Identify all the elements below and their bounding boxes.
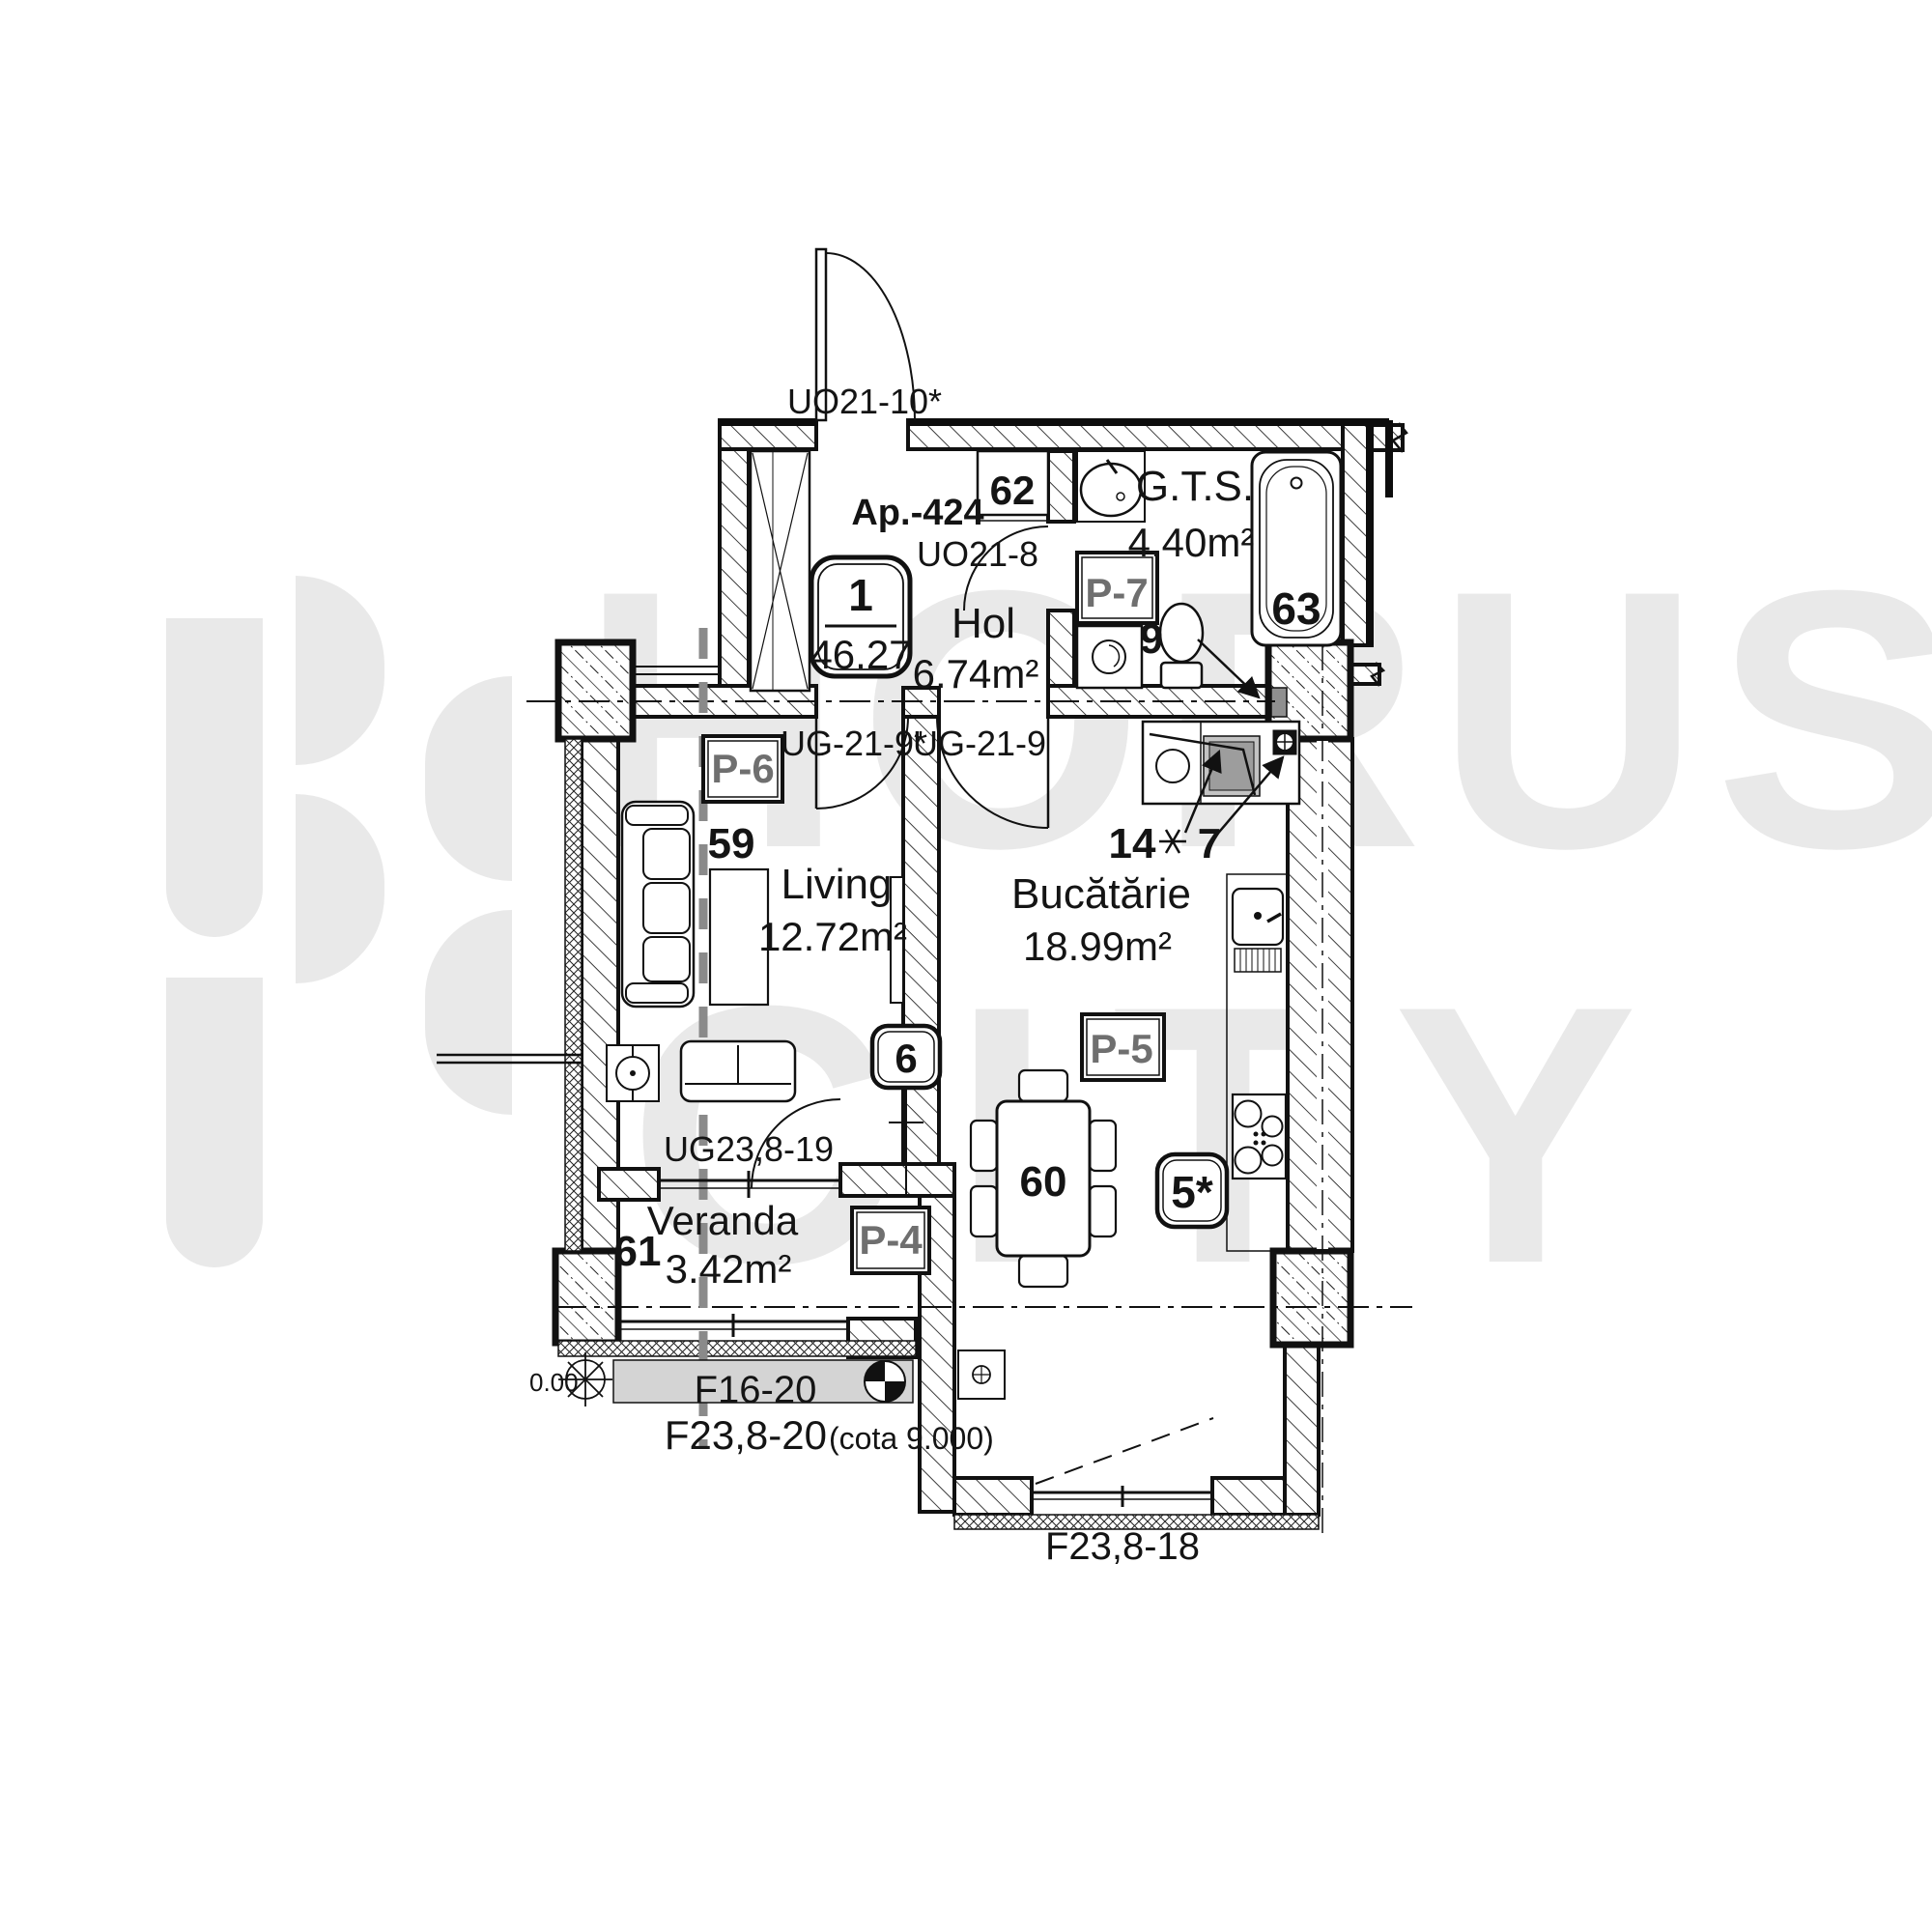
stove	[1233, 1094, 1286, 1179]
badge-apartment-number: 1	[848, 570, 873, 620]
wall-bay-right	[1285, 1345, 1319, 1515]
label-lower-window: F23,8-20	[665, 1412, 827, 1458]
label-p5: P-5	[1090, 1026, 1152, 1071]
label-bathtub-63: 63	[1271, 583, 1321, 634]
wall-bath-left-top	[1048, 451, 1074, 522]
label-wardrobe-62: 62	[990, 468, 1036, 513]
chair	[1019, 1070, 1067, 1101]
loveseat	[681, 1041, 795, 1101]
label-badge-5star: 5*	[1171, 1167, 1213, 1217]
label-veranda-door: UG23,8-19	[664, 1129, 834, 1169]
label-p7: P-7	[1085, 570, 1148, 615]
label-kitchen-area: 18.99m²	[1023, 923, 1172, 969]
chair	[1090, 1121, 1116, 1171]
chair	[971, 1121, 997, 1171]
column-top-left	[558, 642, 633, 739]
label-bath-door: UO21-8	[917, 534, 1038, 574]
label-kitchen-door: UG-21-9	[913, 724, 1046, 763]
label-washer-14: 14	[1109, 820, 1156, 867]
label-gts-name: G.T.S.	[1136, 463, 1254, 510]
floorplan-page: HORUS CITY	[0, 0, 1932, 1932]
label-living-name: Living	[781, 861, 893, 908]
label-p4: P-4	[859, 1217, 923, 1263]
label-level: 0.00	[529, 1368, 579, 1397]
label-living-59: 59	[708, 820, 755, 867]
wall-entry-left	[720, 449, 749, 686]
chair	[1090, 1186, 1116, 1236]
label-dining-60: 60	[1020, 1158, 1067, 1206]
benchmark-icon	[865, 1361, 905, 1402]
insulation-veranda	[558, 1341, 916, 1356]
sofa-cushion	[643, 883, 690, 933]
insulation-left	[565, 739, 582, 1251]
washing-machine	[1077, 626, 1142, 688]
sofa-cushion	[643, 829, 690, 879]
media-unit	[607, 1045, 659, 1101]
label-sill-window: F16-20	[695, 1369, 817, 1411]
label-veranda-area: 3.42m²	[666, 1246, 792, 1292]
column-bottom-left	[555, 1251, 618, 1343]
label-kitchen-name: Bucătărie	[1011, 870, 1191, 918]
wall-living-veranda	[599, 1169, 659, 1200]
wall-bath-left-bottom	[1048, 611, 1074, 686]
chair	[971, 1186, 997, 1236]
junction-star-icon	[1159, 830, 1186, 853]
sofa	[622, 802, 694, 1007]
kitchen-sink	[1233, 889, 1283, 972]
label-living-area: 12.72m²	[758, 914, 907, 959]
label-gts-area: 4.40m²	[1128, 520, 1255, 565]
bay-electric-box	[958, 1350, 1005, 1399]
badge-apartment-area: 46.27	[810, 632, 911, 677]
column-bottom-right	[1273, 1251, 1350, 1345]
toilet	[1160, 604, 1203, 688]
floor-plan: UO21-10* Ap.-424 62 UO21-8 G.T.S. 4.40m²…	[0, 0, 1932, 1932]
sofa-cushion	[643, 937, 690, 981]
label-veranda-name: Veranda	[647, 1198, 799, 1243]
wall-bay-cap-left	[954, 1478, 1032, 1515]
label-p6: P-6	[711, 746, 774, 791]
washer-door-icon	[1156, 750, 1189, 782]
label-veranda-61: 61	[614, 1228, 662, 1275]
socket-box	[1273, 730, 1296, 754]
label-socket-7: 7	[1198, 820, 1221, 867]
label-toilet-9: 9	[1140, 615, 1163, 663]
wall-bay-cap-right	[1212, 1478, 1285, 1515]
chair	[1019, 1256, 1067, 1287]
wardrobe	[751, 451, 810, 691]
label-apartment: Ap.-424	[851, 493, 983, 533]
label-hol-area: 6.74m²	[913, 651, 1039, 696]
wall-cap-veranda	[840, 1164, 954, 1196]
label-lower-window-note: (cota 9.000)	[829, 1421, 994, 1456]
label-badge-6: 6	[895, 1036, 917, 1081]
label-balcony-window: F23,8-18	[1045, 1525, 1200, 1568]
bathroom-sink	[1077, 451, 1145, 522]
wall-living-kitchen	[903, 717, 939, 1164]
label-living-door: UG-21-9*	[781, 724, 927, 763]
label-entrance-door: UO21-10*	[787, 382, 942, 421]
label-hol-name: Hol	[952, 600, 1015, 647]
bay-opening-dash	[1036, 1418, 1213, 1484]
